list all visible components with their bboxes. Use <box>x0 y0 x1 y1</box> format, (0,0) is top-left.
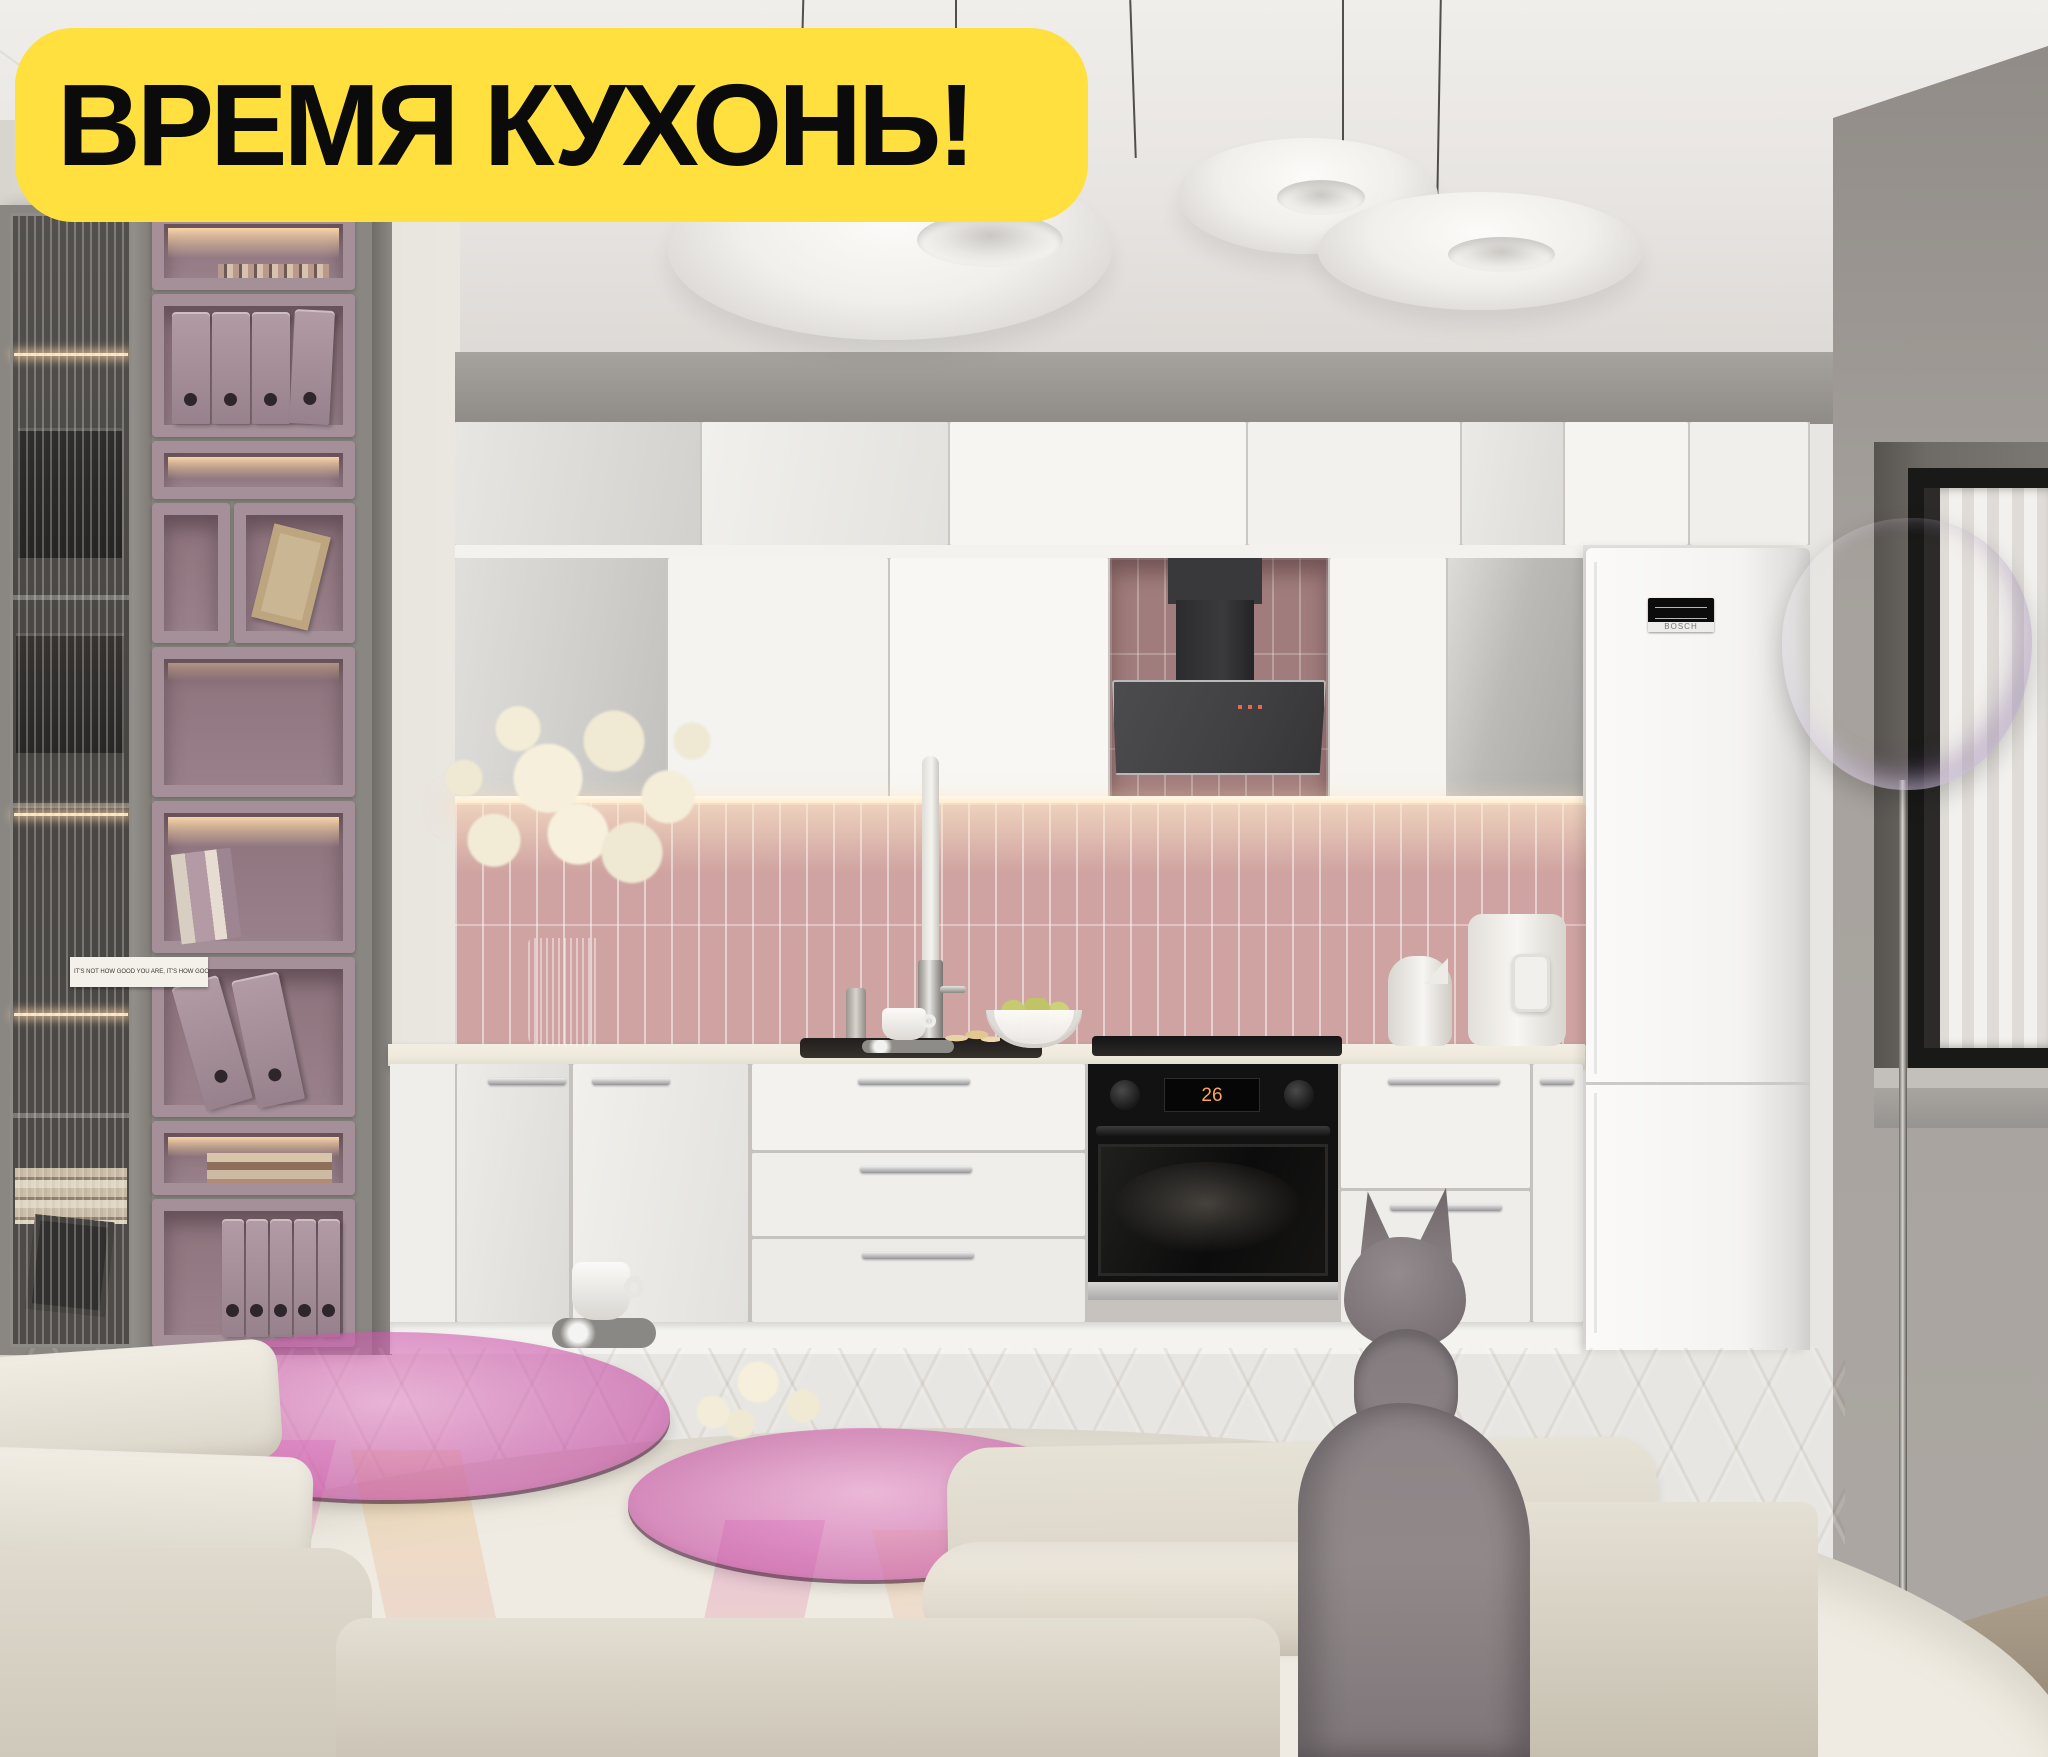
mauve-box-led <box>152 441 355 499</box>
leaning-books <box>171 848 242 945</box>
mauve-box-led-books <box>152 212 355 290</box>
mauve-box-wide <box>152 647 355 797</box>
table-cup-handle <box>624 1276 644 1298</box>
tall-cabinet-door <box>1330 558 1446 800</box>
handle <box>488 1078 566 1085</box>
small-books-row <box>218 264 329 278</box>
horizontal-books <box>207 1153 332 1183</box>
floor-lamp-pole <box>1899 780 1907 1702</box>
upper-cabinet-row-top <box>455 422 1810 545</box>
handle <box>1388 1078 1500 1085</box>
soap-dispenser <box>846 988 866 1044</box>
table-cup-chrome-saucer <box>552 1318 656 1348</box>
purifier-panel <box>1512 954 1550 1012</box>
mauve-box-small <box>152 503 230 643</box>
fluted-glass-door <box>10 213 132 1347</box>
fruit-wire-bowl <box>986 998 1082 1048</box>
oven-knob <box>1284 1080 1314 1110</box>
binder <box>252 312 290 424</box>
fridge-handle-groove <box>1594 562 1597 1074</box>
mauve-box-binders <box>152 294 355 437</box>
pendant-lamp-center <box>1448 237 1555 272</box>
hood-indicator-dots <box>1238 705 1262 709</box>
kettle <box>1388 956 1452 1046</box>
oven-handle <box>1096 1126 1330 1136</box>
cup-handle <box>922 1014 936 1028</box>
pendant-lamp-right <box>1318 192 1642 310</box>
fridge-control-panel: BOSCH <box>1648 598 1714 632</box>
water-purifier <box>1468 914 1566 1046</box>
shelving-unit: IT'S NOT HOW GOOD YOU ARE, IT'S HOW GOOD… <box>0 205 372 1355</box>
promo-banner: ВРЕМЯ КУХОНЬ! <box>15 28 1088 222</box>
handle <box>862 1252 974 1259</box>
faucet-lever <box>940 986 966 993</box>
mauve-box-frame <box>234 503 355 643</box>
wall-cabinet-door <box>455 422 700 545</box>
handle <box>592 1078 670 1085</box>
oven-knob <box>1110 1080 1140 1110</box>
table-cup <box>572 1262 630 1320</box>
binder <box>212 312 250 424</box>
gypsophila-flowers <box>428 648 728 958</box>
wall-cabinet-door <box>1690 422 1808 545</box>
binder <box>172 312 210 424</box>
cabinet-soffit-band <box>455 545 1583 558</box>
binder <box>246 1219 268 1337</box>
drawer <box>752 1064 1085 1150</box>
shelving-side-panel <box>372 205 392 1355</box>
pendant-lamp-center <box>1277 180 1365 215</box>
tall-cabinet-door-mirror <box>1448 558 1583 800</box>
table-flowers <box>668 1340 848 1460</box>
binder <box>289 309 335 425</box>
white-book-spine: IT'S NOT HOW GOOD YOU ARE, IT'S HOW GOOD… <box>70 957 208 987</box>
handle <box>1540 1078 1574 1085</box>
cat <box>1290 1185 1540 1757</box>
wall-cabinet-door <box>1565 422 1688 545</box>
shelving-glass-column <box>10 213 132 1347</box>
wall-cabinet-door <box>702 422 948 545</box>
sofa-bench-seat <box>336 1618 1280 1757</box>
hood-chimney <box>1168 558 1262 604</box>
wall-cabinet-door <box>1248 422 1460 545</box>
binder <box>318 1219 340 1337</box>
binder <box>222 1219 244 1337</box>
wall-band-above-cabinets <box>455 352 1835 424</box>
binder <box>270 1219 292 1337</box>
kettle-spout <box>1424 958 1448 984</box>
fridge-handle-groove <box>1594 1093 1597 1333</box>
handle <box>858 1078 970 1085</box>
base-door-narrow <box>1533 1064 1583 1322</box>
wall-cabinet-door <box>950 422 1246 545</box>
promo-banner-text: ВРЕМЯ КУХОНЬ! <box>57 58 972 192</box>
sofa-left-arm <box>0 1548 372 1757</box>
fridge-door-seam <box>1586 1082 1810 1085</box>
faucet-white-column <box>922 756 939 962</box>
mauve-box-led-stack <box>152 1121 355 1195</box>
cooktop <box>1092 1036 1342 1056</box>
hood-body <box>1112 680 1326 775</box>
mauve-box-books <box>152 801 355 953</box>
cat-body <box>1298 1403 1530 1757</box>
fridge-brand-label: BOSCH <box>1648 622 1714 632</box>
wall-cabinet-door <box>1462 422 1563 545</box>
binder <box>294 1219 316 1337</box>
wire-basket <box>986 1010 1082 1048</box>
espresso-cup <box>882 1008 926 1040</box>
base-door <box>457 1064 569 1322</box>
oven-glass-reflection <box>1112 1162 1302 1254</box>
mauve-box-binder-row <box>152 1199 355 1347</box>
handle <box>860 1166 972 1173</box>
oven-display: 26 <box>1164 1078 1260 1112</box>
base-side-panel <box>390 1064 455 1322</box>
hood-chimney-lower <box>1176 600 1254 684</box>
shelving-divider <box>132 205 152 1355</box>
chrome-bubble-tray <box>862 1040 954 1053</box>
fridge: BOSCH <box>1586 548 1810 1350</box>
pendant-wire <box>1342 0 1344 148</box>
kitchen-ad-scene: IT'S NOT HOW GOOD YOU ARE, IT'S HOW GOOD… <box>0 0 2048 1757</box>
